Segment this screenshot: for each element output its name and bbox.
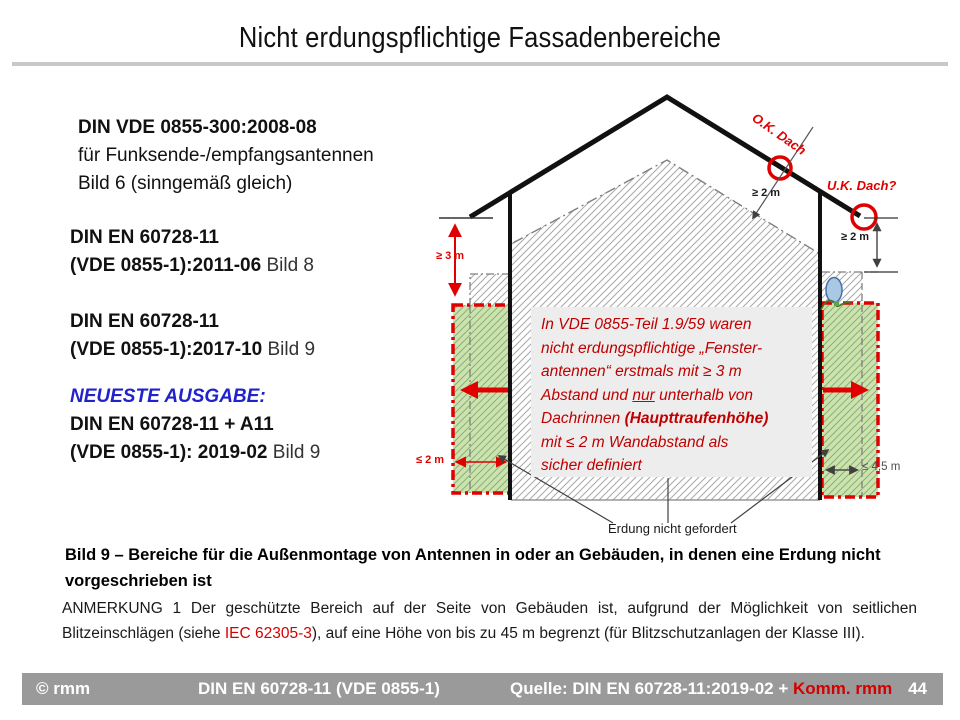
- figure-caption: Bild 9 – Bereiche für die Außenmontage v…: [65, 542, 881, 594]
- standard-figure-ref: Bild 9: [273, 442, 321, 463]
- caption-line: Bild 9 – Bereiche für die Außenmontage v…: [65, 542, 881, 568]
- window-antenna: [826, 278, 842, 303]
- standards-block-en60728-2011: DIN EN 60728-11 (VDE 0855-1):2011-06 Bil…: [70, 224, 314, 280]
- hatched-strip-right: [822, 272, 862, 303]
- standard-title: DIN VDE 0855-300:2008-08: [78, 114, 374, 142]
- note-text-bold: (Haupttraufenhöhe): [625, 410, 769, 427]
- standards-block-vde0855-300: DIN VDE 0855-300:2008-08 für Funksende-/…: [78, 114, 374, 198]
- standard-title: DIN EN 60728-11: [70, 224, 314, 252]
- source-prefix: Quelle: DIN EN 60728-11:2019-02 +: [510, 679, 793, 698]
- page-title-text: Nicht erdungspflichtige Fassadenbereiche: [239, 22, 721, 55]
- protected-zone-boundary: [513, 160, 820, 254]
- page-title: Nicht erdungspflichtige Fassadenbereiche: [0, 22, 960, 55]
- standard-version-line: (VDE 0855-1):2017-10 Bild 9: [70, 336, 315, 364]
- note-text: Dachrinnen: [541, 410, 625, 427]
- green-zone-left: [453, 305, 510, 493]
- hatched-strip-left: [470, 274, 510, 305]
- latest-edition-heading: NEUESTE AUSGABE:: [70, 383, 320, 411]
- note-line: antennen“ erstmals mit ≥ 3 m: [541, 360, 812, 384]
- copyright-label: © rmm: [36, 673, 90, 705]
- standards-block-latest: NEUESTE AUSGABE: DIN EN 60728-11 + A11 (…: [70, 383, 320, 467]
- note-line: Abstand und nur unterhalb von: [541, 384, 812, 408]
- slide: Nicht erdungspflichtige Fassadenbereiche…: [0, 0, 960, 720]
- standard-subtitle: für Funksende-/empfangsantennen: [78, 142, 374, 170]
- title-underline: [12, 62, 948, 66]
- vde-history-note-box: In VDE 0855-Teil 1.9/59 waren nicht erdu…: [531, 307, 812, 477]
- standard-figure-ref: Bild 6 (sinngemäß gleich): [78, 170, 374, 198]
- source-comment-red: Komm. rmm: [793, 679, 892, 698]
- uk-dach-label: U.K. Dach?: [827, 178, 896, 193]
- note-line: In VDE 0855-Teil 1.9/59 waren: [541, 313, 812, 337]
- anmerkung-note: ANMERKUNG 1 Der geschützte Bereich auf d…: [62, 596, 917, 646]
- note-line: nicht erdungspflichtige „Fenster-: [541, 337, 812, 361]
- note-text: unterhalb von: [655, 387, 753, 404]
- cable-connector: [834, 301, 839, 306]
- wall-distance-measure: [864, 218, 898, 272]
- note-text-underlined: nur: [632, 387, 654, 404]
- standard-figure-ref: Bild 9: [268, 339, 316, 360]
- note-line: Dachrinnen (Haupttraufenhöhe): [541, 407, 812, 431]
- note-text: Abstand und: [541, 387, 632, 404]
- standard-figure-ref: Bild 8: [266, 255, 314, 276]
- note-line: mit ≤ 2 m Wandabstand als: [541, 431, 812, 455]
- roof: [470, 97, 860, 217]
- note-line: sicher definiert: [541, 454, 812, 478]
- footer-source: Quelle: DIN EN 60728-11:2019-02 + Komm. …: [510, 673, 892, 705]
- iec-reference: IEC 62305-3: [225, 625, 312, 642]
- zone-extends-left-arrow: [460, 381, 508, 399]
- standard-version-line: (VDE 0855-1):2011-06 Bild 8: [70, 252, 314, 280]
- standard-version: (VDE 0855-1):2011-06: [70, 255, 261, 276]
- footer-bar: © rmm DIN EN 60728-11 (VDE 0855-1) Quell…: [22, 673, 943, 705]
- ok-dach-label: O.K. Dach: [749, 110, 808, 158]
- le2m-label: ≤ 2 m: [416, 454, 444, 466]
- ge2m-wall-label: ≥ 2 m: [841, 231, 869, 243]
- page-number: 44: [908, 673, 927, 705]
- antenna-cable: [821, 300, 852, 310]
- standard-version: (VDE 0855-1): 2019-02: [70, 442, 268, 463]
- uk-dach-circle: [852, 205, 876, 229]
- standards-block-en60728-2017: DIN EN 60728-11 (VDE 0855-1):2017-10 Bil…: [70, 308, 315, 364]
- standard-version: (VDE 0855-1):2017-10: [70, 339, 262, 360]
- strip-border-left: [470, 274, 510, 305]
- standard-version-line: (VDE 0855-1): 2019-02 Bild 9: [70, 439, 320, 467]
- caption-line: vorgeschrieben ist: [65, 568, 881, 594]
- anmerkung-text: ), auf eine Höhe von bis zu 45 m begrenz…: [312, 625, 865, 642]
- ge3m-label: ≥ 3 m: [436, 250, 464, 262]
- zone-extends-right-arrow: [823, 381, 869, 399]
- ok-dach-circle: [769, 157, 791, 179]
- standard-title: DIN EN 60728-11: [70, 308, 315, 336]
- ge2m-roof-label: ≥ 2 m: [752, 187, 780, 199]
- footer-standard-label: DIN EN 60728-11 (VDE 0855-1): [198, 673, 440, 705]
- le45m-label: ≤ 4,5 m: [862, 461, 900, 473]
- standard-title: DIN EN 60728-11 + A11: [70, 411, 320, 439]
- erdung-label: Erdung nicht gefordert: [608, 521, 737, 536]
